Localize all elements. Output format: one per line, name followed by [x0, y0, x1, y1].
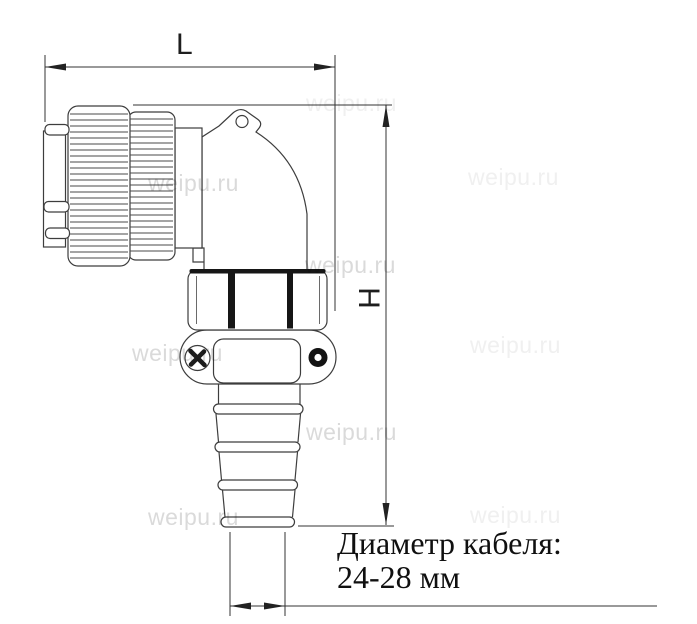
height-dimension-label: H	[349, 281, 383, 315]
length-dimension-label: L	[176, 30, 193, 60]
barb-taper	[216, 414, 219, 442]
barb-ring	[221, 517, 295, 527]
mounting-lug-hole	[236, 116, 248, 128]
arrowhead-left	[230, 603, 251, 610]
diagram-canvas: L H Диаметр кабеля: 24-28 мм weipu.ru we…	[0, 0, 697, 624]
contact-pin	[46, 228, 70, 239]
arrowhead-left	[45, 64, 66, 71]
barb-taper	[298, 414, 301, 442]
cable-diameter-note-line2: 24-28 мм	[337, 560, 562, 594]
nut-top-edge-band	[190, 269, 326, 274]
body-step-edge	[193, 248, 205, 262]
elbow-housing	[202, 110, 307, 270]
barb-ring	[218, 480, 298, 490]
connector-drawing	[44, 106, 337, 527]
cable-diameter-note-line1: Диаметр кабеля:	[337, 526, 562, 560]
barb-taper	[295, 452, 298, 480]
barb-taper	[219, 452, 222, 480]
contact-pin	[44, 202, 69, 213]
barb-taper	[293, 490, 296, 517]
barb-taper	[223, 490, 226, 517]
arrowhead-right	[314, 64, 335, 71]
arrowhead-right	[264, 603, 285, 610]
arrowhead-up	[383, 105, 390, 127]
nut-slot	[228, 272, 235, 329]
cable-barb	[214, 384, 304, 527]
contact-pin	[45, 125, 69, 136]
cable-diameter-note: Диаметр кабеля: 24-28 мм	[337, 526, 562, 594]
barb-ring	[214, 404, 304, 414]
gland-nut	[188, 270, 327, 330]
connector-body	[175, 128, 202, 248]
knurled-ring-rear	[128, 112, 175, 260]
arrowhead-down	[383, 503, 390, 525]
nut-slot	[287, 272, 293, 329]
clamp-hole-center	[314, 354, 321, 361]
barb-ring	[215, 442, 300, 452]
